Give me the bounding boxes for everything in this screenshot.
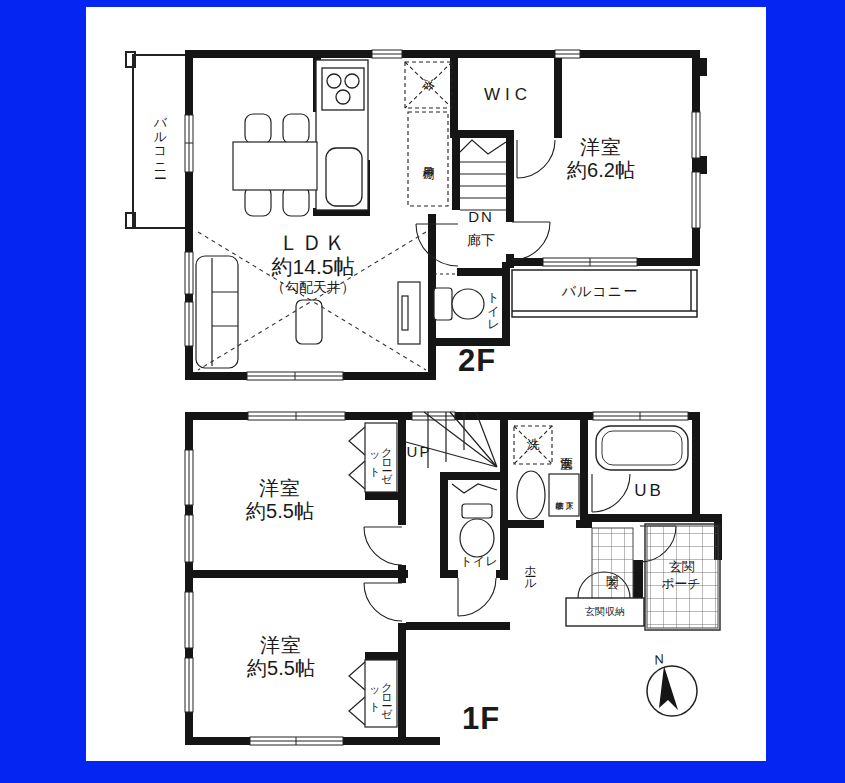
label-floor-1f: 1F	[462, 702, 500, 735]
label-ldk: ＬＤＫ	[279, 232, 348, 255]
label-hallway: 廊下	[467, 233, 495, 248]
label-bedroom2-1f-size: 約5.5帖	[247, 658, 315, 680]
label-hall: ホール	[524, 556, 537, 583]
dining-set	[233, 114, 317, 216]
compass-icon	[647, 666, 697, 716]
label-toilet-2f: トイレ	[487, 284, 500, 325]
label-toilet-1f: トイレ	[461, 555, 498, 568]
label-ldk-note: （勾配天井）	[271, 280, 355, 295]
label-bedroom2-1f: 洋室	[260, 635, 302, 657]
stairs-2f	[460, 140, 506, 210]
low-table	[296, 300, 322, 344]
label-porch-line2: ポーチ	[661, 577, 701, 591]
label-stairs-dn: DN	[468, 209, 494, 225]
label-floor-2f: 2F	[458, 344, 496, 377]
label-bedroom1-1f: 洋室	[259, 478, 301, 500]
label-bedroom-2f-size: 約6.2帖	[567, 160, 635, 182]
label-ldk-size: 約14.5帖	[272, 256, 355, 279]
toilet-fixture-1f	[460, 504, 494, 557]
bathtub	[596, 426, 688, 470]
sofa	[196, 256, 238, 368]
toilet-fixture-2f	[434, 288, 484, 320]
label-bedroom1-1f-size: 約5.5帖	[246, 501, 314, 523]
label-closet2: クローゼット	[369, 673, 393, 715]
underfloor-storage-box	[549, 474, 579, 516]
kitchen-counter	[316, 60, 368, 210]
label-closet1: クローゼット	[369, 438, 393, 480]
label-unit-bath: UB	[634, 482, 664, 500]
label-refrigerator: 冷	[421, 79, 435, 92]
label-washer: 洗	[527, 438, 540, 452]
floorplan-drawing	[0, 0, 845, 783]
tv-board	[398, 282, 420, 344]
label-wic: WIC	[484, 86, 532, 104]
label-balcony-right-2f: バルコニー	[562, 284, 638, 299]
label-stairs-up: UP	[407, 444, 432, 460]
label-balcony-left-2f: バルコニー	[153, 108, 167, 172]
label-porch-line1: 玄関	[669, 560, 695, 574]
washbasin	[517, 471, 545, 519]
label-entrance-storage: 玄関収納	[585, 607, 625, 618]
floorplan-image: バルコニー ＬＤＫ 約14.5帖 （勾配天井） 吊戸棚 冷 WIC DN 廊下 …	[0, 0, 845, 783]
label-bedroom-2f: 洋室	[580, 137, 622, 159]
hanging-cupboard-box	[408, 112, 448, 206]
